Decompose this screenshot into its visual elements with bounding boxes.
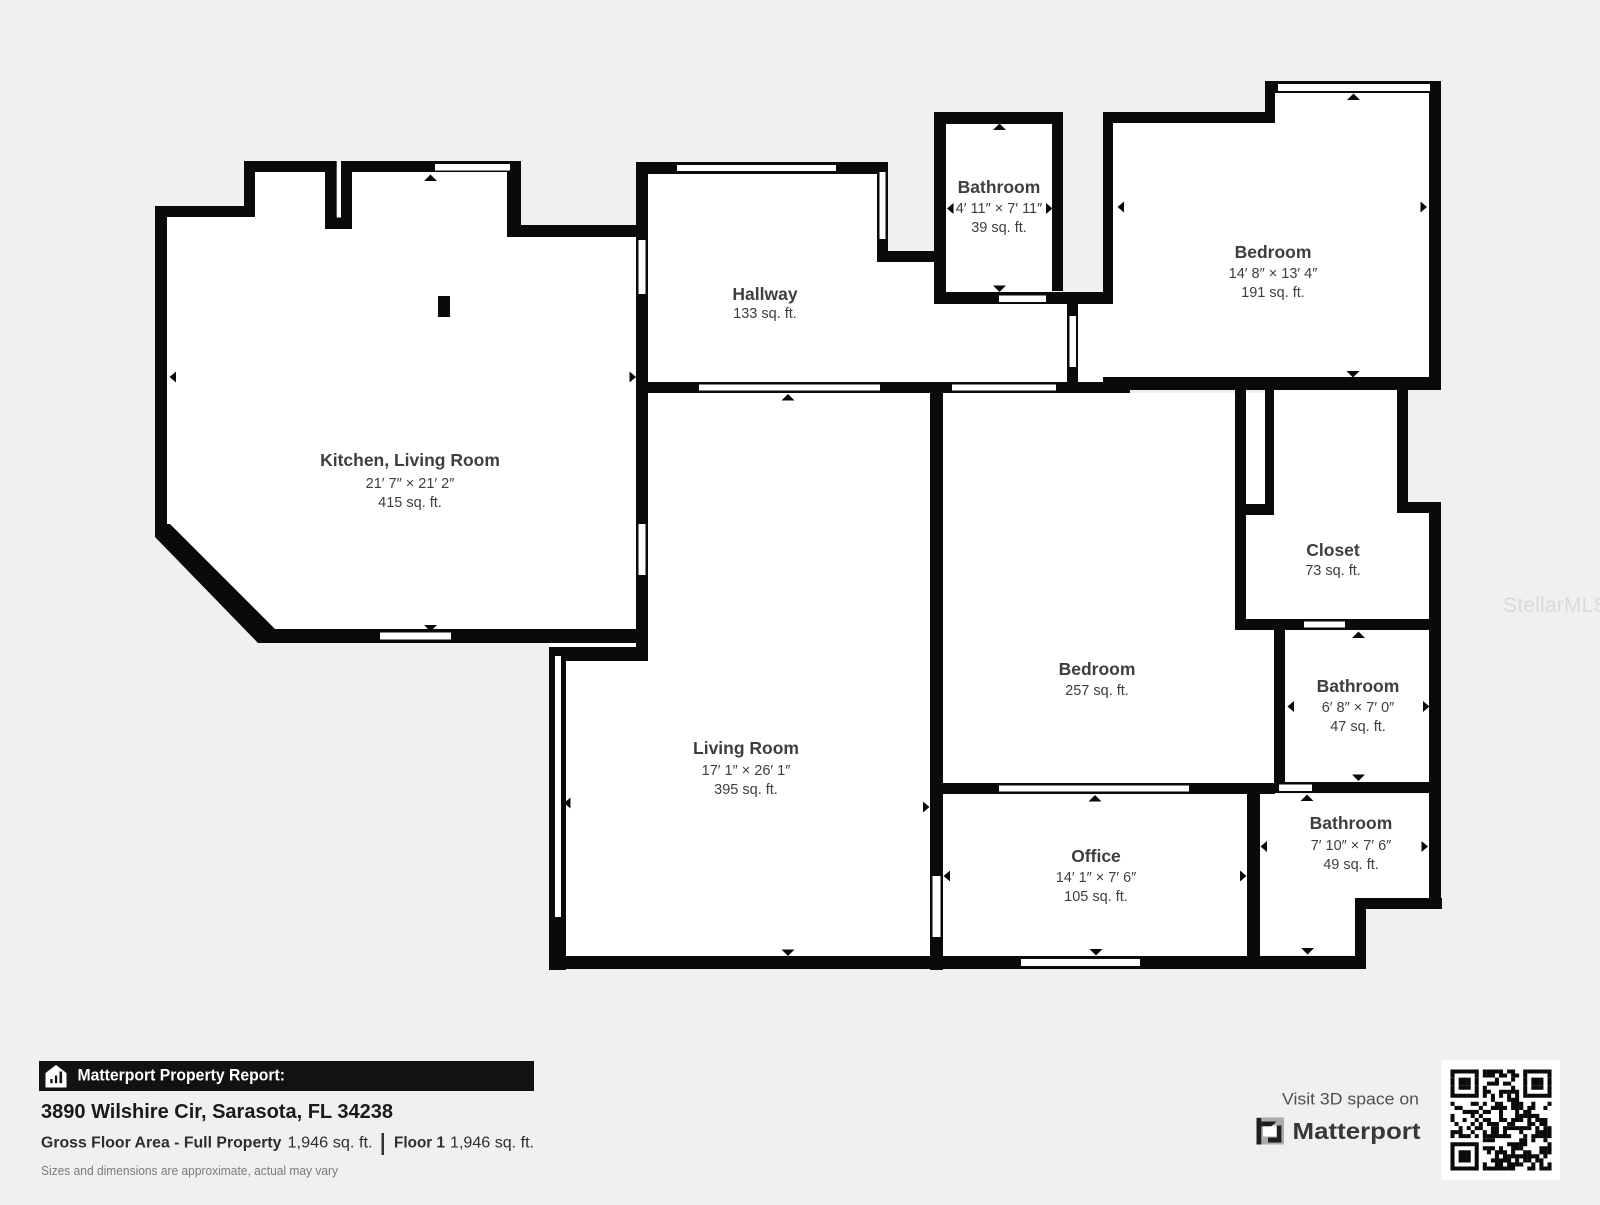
svg-text:39 sq. ft.: 39 sq. ft. (971, 220, 1027, 236)
svg-text:395 sq. ft.: 395 sq. ft. (714, 782, 778, 798)
svg-text:Bathroom: Bathroom (1310, 813, 1393, 833)
svg-text:14′ 1″ × 7′ 6″: 14′ 1″ × 7′ 6″ (1056, 870, 1137, 886)
svg-text:14′ 8″ × 13′ 4″: 14′ 8″ × 13′ 4″ (1229, 266, 1318, 282)
svg-text:Gross Floor Area - Full Proper: Gross Floor Area - Full Property (41, 1135, 282, 1152)
svg-text:17′ 1″ × 26′ 1″: 17′ 1″ × 26′ 1″ (702, 763, 791, 779)
svg-text:Visit 3D space on: Visit 3D space on (1282, 1091, 1419, 1109)
svg-text:Bedroom: Bedroom (1059, 659, 1136, 679)
svg-text:415 sq. ft.: 415 sq. ft. (378, 495, 442, 511)
svg-text:73 sq. ft.: 73 sq. ft. (1305, 563, 1361, 579)
svg-text:4′ 11″ × 7′ 11″: 4′ 11″ × 7′ 11″ (956, 201, 1043, 217)
svg-text:105 sq. ft.: 105 sq. ft. (1064, 889, 1128, 905)
svg-text:Closet: Closet (1306, 540, 1360, 560)
svg-text:6′ 8″ × 7′ 0″: 6′ 8″ × 7′ 0″ (1322, 700, 1395, 716)
svg-text:Hallway: Hallway (732, 284, 797, 304)
svg-text:Bathroom: Bathroom (958, 177, 1041, 197)
svg-text:Sizes and dimensions are appro: Sizes and dimensions are approximate, ac… (41, 1164, 339, 1178)
svg-text:21′ 7″ × 21′ 2″: 21′ 7″ × 21′ 2″ (366, 476, 455, 492)
svg-text:Matterport Property Report:: Matterport Property Report: (78, 1066, 286, 1085)
svg-text:Office: Office (1071, 846, 1121, 866)
svg-text:257 sq. ft.: 257 sq. ft. (1065, 683, 1129, 699)
svg-text:191 sq. ft.: 191 sq. ft. (1241, 285, 1305, 301)
svg-text:Floor 1: Floor 1 (394, 1135, 445, 1152)
svg-text:7′ 10″ × 7′ 6″: 7′ 10″ × 7′ 6″ (1311, 838, 1392, 854)
svg-text:Bedroom: Bedroom (1235, 242, 1312, 262)
svg-text:StellarMLS: StellarMLS (1503, 594, 1600, 617)
svg-text:Matterport: Matterport (1293, 1118, 1421, 1144)
svg-text:49 sq. ft.: 49 sq. ft. (1323, 857, 1379, 873)
svg-text:3890 Wilshire Cir, Sarasota, F: 3890 Wilshire Cir, Sarasota, FL 34238 (41, 1101, 393, 1123)
svg-text:Bathroom: Bathroom (1317, 676, 1400, 696)
svg-text:47 sq. ft.: 47 sq. ft. (1330, 719, 1386, 735)
svg-text:Kitchen, Living Room: Kitchen, Living Room (320, 450, 500, 470)
svg-text:Living Room: Living Room (693, 738, 799, 758)
svg-text:1,946 sq. ft.: 1,946 sq. ft. (288, 1135, 373, 1152)
svg-text:133 sq. ft.: 133 sq. ft. (733, 306, 797, 322)
svg-text:1,946 sq. ft.: 1,946 sq. ft. (450, 1135, 534, 1152)
